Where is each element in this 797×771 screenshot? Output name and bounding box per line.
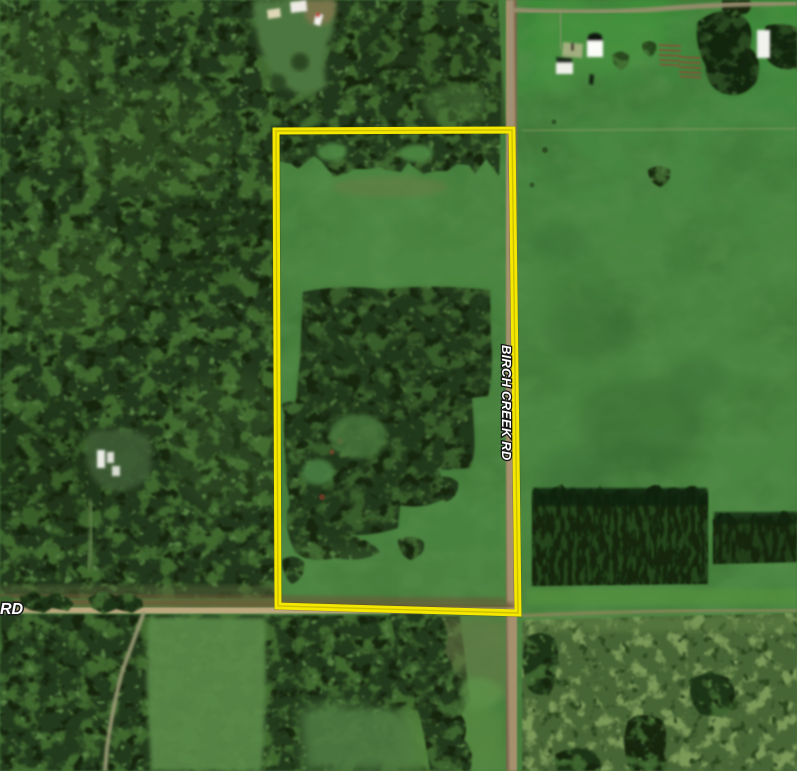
svg-text:BIRCH CREEK RD: BIRCH CREEK RD xyxy=(499,345,514,461)
svg-text:RD: RD xyxy=(0,601,24,618)
